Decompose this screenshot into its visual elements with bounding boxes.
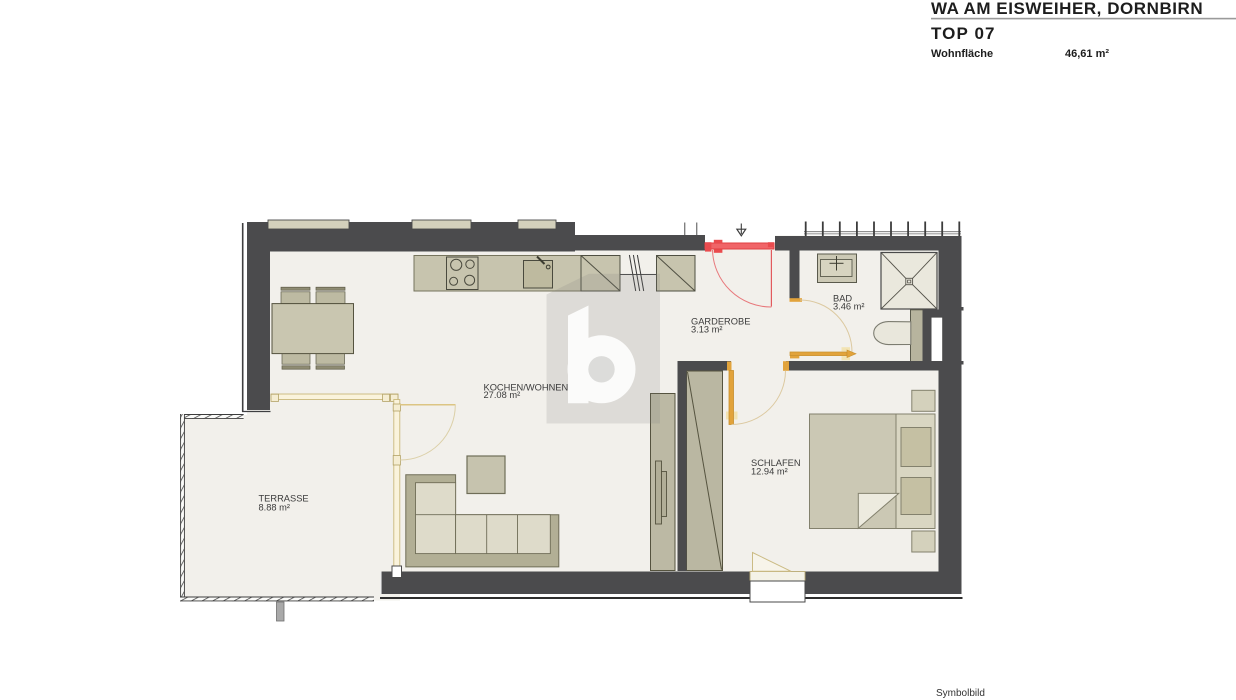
svg-text:8.88 m²: 8.88 m²	[259, 502, 291, 512]
svg-text:Wohnfläche: Wohnfläche	[931, 48, 993, 60]
svg-text:3.13 m²: 3.13 m²	[691, 324, 723, 334]
svg-text:27.08 m²: 27.08 m²	[484, 390, 521, 400]
svg-text:12.94 m²: 12.94 m²	[751, 466, 788, 476]
svg-text:TOP 07: TOP 07	[931, 24, 996, 43]
svg-text:WA AM EISWEIHER, DORNBIRN: WA AM EISWEIHER, DORNBIRN	[931, 0, 1203, 18]
svg-text:Symbolbild: Symbolbild	[936, 688, 985, 699]
svg-text:3.46 m²: 3.46 m²	[833, 301, 865, 311]
svg-text:46,61 m²: 46,61 m²	[1065, 48, 1109, 60]
